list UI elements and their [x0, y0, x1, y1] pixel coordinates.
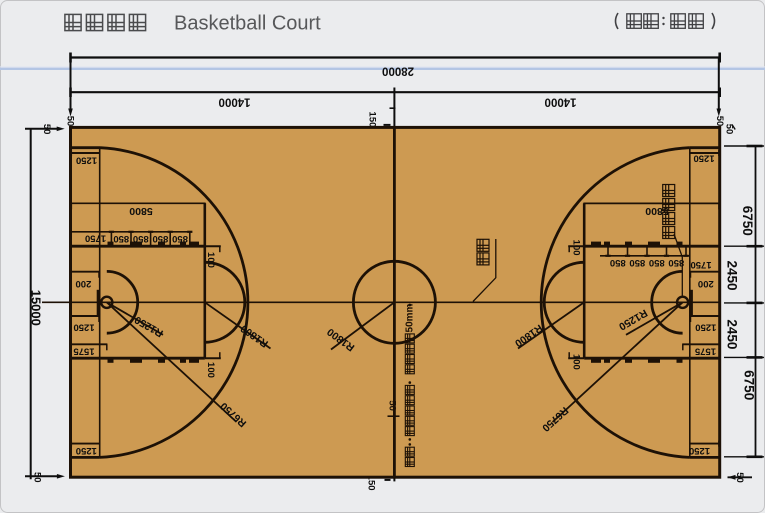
svg-text:850: 850	[152, 233, 168, 244]
svg-text:1250: 1250	[76, 154, 97, 165]
svg-text:50: 50	[41, 124, 52, 135]
svg-text:50: 50	[65, 116, 76, 127]
svg-text:100: 100	[570, 354, 581, 370]
svg-text:850: 850	[113, 233, 129, 244]
svg-text:1575: 1575	[694, 346, 716, 357]
svg-text:6750: 6750	[742, 370, 757, 400]
svg-text:150: 150	[366, 112, 377, 128]
svg-text:200: 200	[698, 278, 714, 289]
svg-text:6750: 6750	[740, 206, 755, 236]
svg-text:50: 50	[32, 472, 43, 483]
svg-text:50mm: 50mm	[404, 303, 415, 332]
svg-text:1250: 1250	[76, 445, 97, 456]
svg-text:850: 850	[629, 257, 645, 268]
svg-text:1250: 1250	[695, 322, 716, 333]
svg-text:850: 850	[172, 233, 188, 244]
svg-text:1750: 1750	[690, 259, 711, 270]
svg-text:200: 200	[75, 278, 91, 289]
svg-text:1250: 1250	[693, 152, 714, 163]
svg-text:28000: 28000	[382, 65, 414, 77]
svg-text:Basketball Court: Basketball Court	[174, 13, 321, 35]
svg-text:850: 850	[610, 257, 626, 268]
svg-text:850: 850	[649, 257, 665, 268]
svg-text:5800: 5800	[129, 205, 153, 217]
svg-text:50: 50	[387, 400, 398, 411]
svg-text:50: 50	[734, 472, 745, 483]
svg-text:2450: 2450	[724, 319, 739, 349]
svg-text:14000: 14000	[219, 95, 251, 107]
svg-text:2450: 2450	[724, 260, 739, 290]
svg-text:100: 100	[205, 252, 216, 268]
svg-text:14000: 14000	[545, 95, 577, 107]
svg-text:100: 100	[205, 362, 216, 378]
svg-text:1575: 1575	[73, 346, 95, 357]
svg-text:15000: 15000	[28, 290, 43, 326]
svg-text:850: 850	[133, 233, 149, 244]
svg-text:1250: 1250	[73, 322, 94, 333]
svg-text:100: 100	[570, 240, 581, 256]
svg-text:1250: 1250	[689, 445, 710, 456]
svg-text:1750: 1750	[85, 232, 106, 243]
